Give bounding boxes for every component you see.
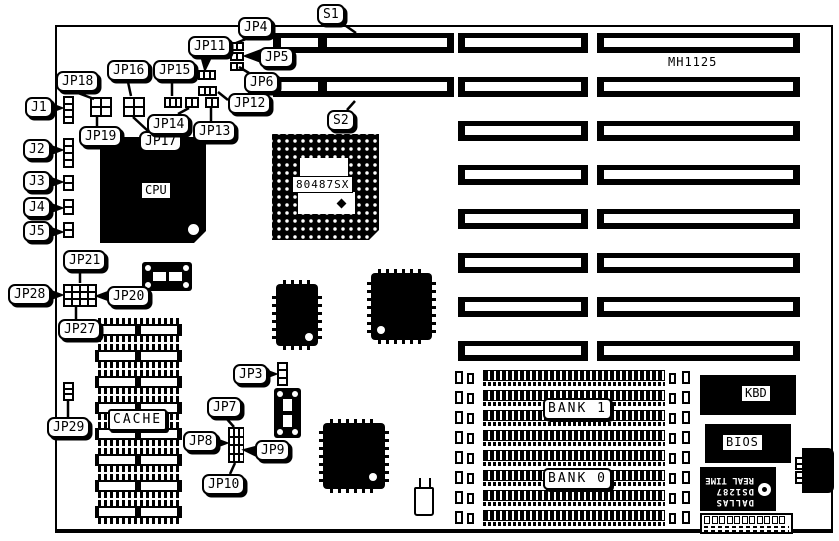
callout-j3: J3 [23, 171, 51, 192]
callout-jp18: JP18 [56, 71, 99, 92]
callout-s2: S2 [327, 110, 355, 131]
callout-jp11: JP11 [188, 36, 231, 57]
callout-jp13: JP13 [193, 121, 236, 142]
callout-j2: J2 [23, 139, 51, 160]
callout-jp3: JP3 [233, 364, 268, 385]
callout-jp20: JP20 [107, 286, 150, 307]
callout-jp12: JP12 [228, 93, 271, 114]
callout-jp16: JP16 [107, 60, 150, 81]
callout-jp19: JP19 [79, 126, 122, 147]
callout-j1: J1 [25, 97, 53, 118]
callout-jp6: JP6 [244, 72, 279, 93]
motherboard-diagram: MH1125 CPU 80487SX [0, 0, 839, 541]
callout-jp8: JP8 [183, 431, 218, 452]
callout-jp9: JP9 [255, 440, 290, 461]
callout-s1: S1 [317, 4, 345, 25]
callout-jp14: JP14 [147, 114, 190, 135]
callout-jp5: JP5 [259, 47, 294, 68]
callout-jp27: JP27 [58, 319, 101, 340]
callout-jp28: JP28 [8, 284, 51, 305]
callout-jp10: JP10 [202, 474, 245, 495]
callout-jp29: JP29 [47, 417, 90, 438]
callout-jp15: JP15 [153, 60, 196, 81]
callout-jp7: JP7 [207, 397, 242, 418]
leader-lines [0, 0, 839, 541]
callout-jp4: JP4 [238, 17, 273, 38]
callout-jp21: JP21 [63, 250, 106, 271]
callout-j4: J4 [23, 197, 51, 218]
callout-j5: J5 [23, 221, 51, 242]
